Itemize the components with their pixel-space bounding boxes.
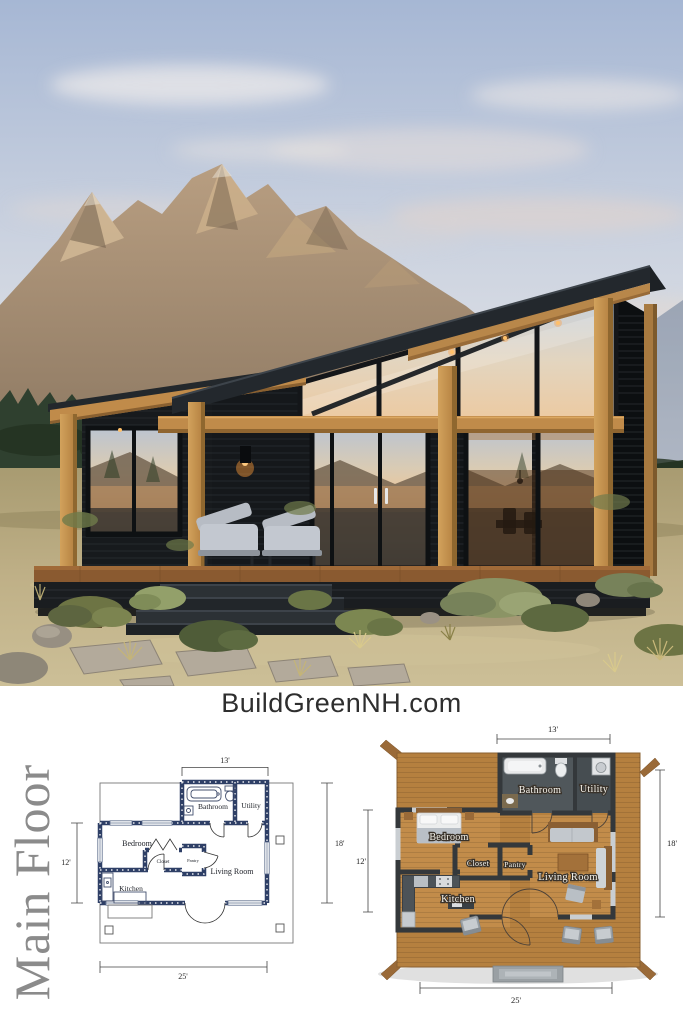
room-label-kitchen-2d: Kitchen bbox=[119, 884, 143, 893]
dim-bottom-2d: 25' bbox=[178, 972, 188, 981]
dim-top-2d: 13' bbox=[220, 756, 230, 765]
dim-right-2d: 18' bbox=[335, 839, 345, 848]
room-label-closet-3d: Closet bbox=[467, 859, 490, 868]
room-label-bathroom-2d: Bathroom bbox=[198, 802, 228, 811]
entry-steps-3d bbox=[493, 966, 563, 982]
dim-top-3d: 13' bbox=[548, 724, 559, 734]
dim-left-3d: 12' bbox=[356, 856, 367, 866]
door-handle bbox=[385, 488, 388, 504]
door-handle bbox=[374, 488, 377, 504]
room-label-bedroom-2d: Bedroom bbox=[122, 839, 153, 848]
room-label-closet-2d: Closet bbox=[157, 860, 170, 865]
floor-plans-section: Main Floor bbox=[0, 714, 683, 1024]
dim-right-3d: 18' bbox=[667, 838, 678, 848]
room-label-bedroom-3d: Bedroom bbox=[429, 832, 468, 843]
room-label-pantry-2d: Pantry bbox=[187, 858, 199, 863]
room-label-living-room-2d: Living Room bbox=[211, 867, 255, 876]
floor-plan-2d: 13' 18' 12' 25' Bathroom Utility Bedroom… bbox=[48, 746, 348, 1018]
room-label-bathroom-3d: Bathroom bbox=[519, 785, 561, 796]
pin-image: BuildGreenNH.com Main Floor bbox=[0, 0, 683, 1024]
cabin-photo bbox=[0, 0, 683, 686]
room-label-living-room-3d: Living Room bbox=[538, 872, 598, 883]
room-label-utility-2d: Utility bbox=[241, 801, 261, 810]
floor-plan-3d: 13' 18' 12' 25' Bathroom Utility Bedroom… bbox=[352, 720, 683, 1020]
room-label-pantry-3d: Pantry bbox=[504, 860, 525, 869]
dim-left-2d: 12' bbox=[61, 858, 71, 867]
room-label-utility-3d: Utility bbox=[580, 784, 608, 795]
dim-bottom-3d: 25' bbox=[511, 995, 522, 1005]
room-label-kitchen-3d: Kitchen bbox=[441, 894, 475, 905]
